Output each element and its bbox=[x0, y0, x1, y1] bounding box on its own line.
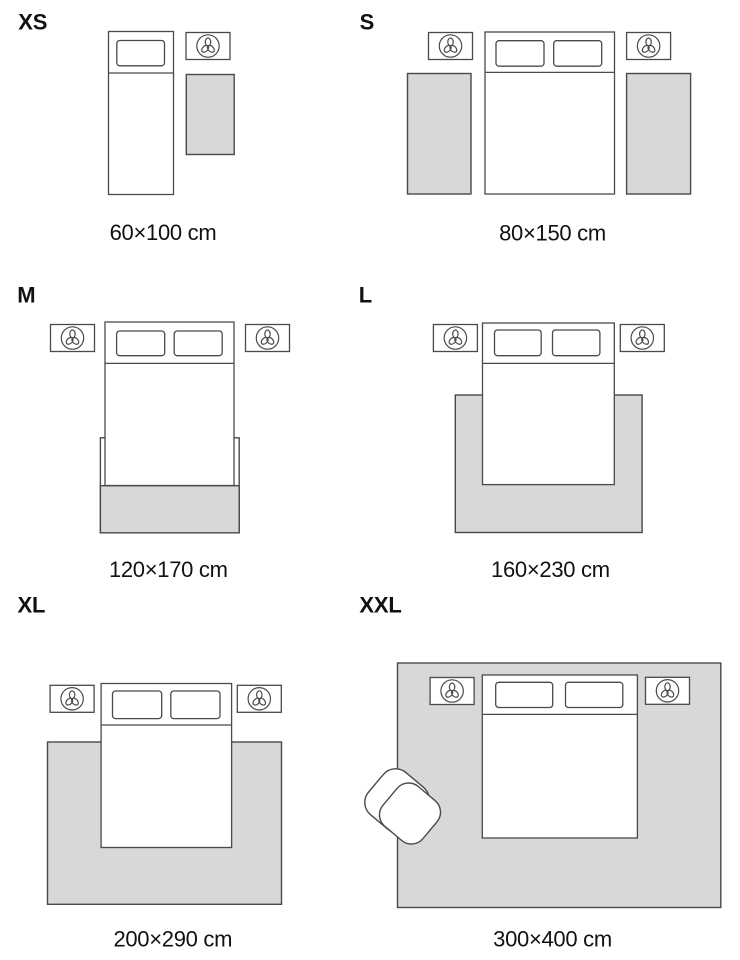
svg-text:120×170 cm: 120×170 cm bbox=[109, 557, 228, 582]
svg-text:200×290 cm: 200×290 cm bbox=[113, 927, 232, 952]
svg-text:XXL: XXL bbox=[359, 593, 401, 618]
svg-text:300×400 cm: 300×400 cm bbox=[493, 927, 612, 952]
svg-text:L: L bbox=[359, 282, 372, 307]
svg-text:160×230 cm: 160×230 cm bbox=[491, 557, 610, 582]
svg-text:XL: XL bbox=[18, 593, 46, 618]
svg-text:XS: XS bbox=[18, 10, 47, 35]
svg-text:M: M bbox=[17, 282, 35, 307]
svg-text:80×150 cm: 80×150 cm bbox=[499, 220, 606, 245]
svg-text:S: S bbox=[360, 10, 374, 35]
svg-text:60×100 cm: 60×100 cm bbox=[110, 220, 217, 245]
